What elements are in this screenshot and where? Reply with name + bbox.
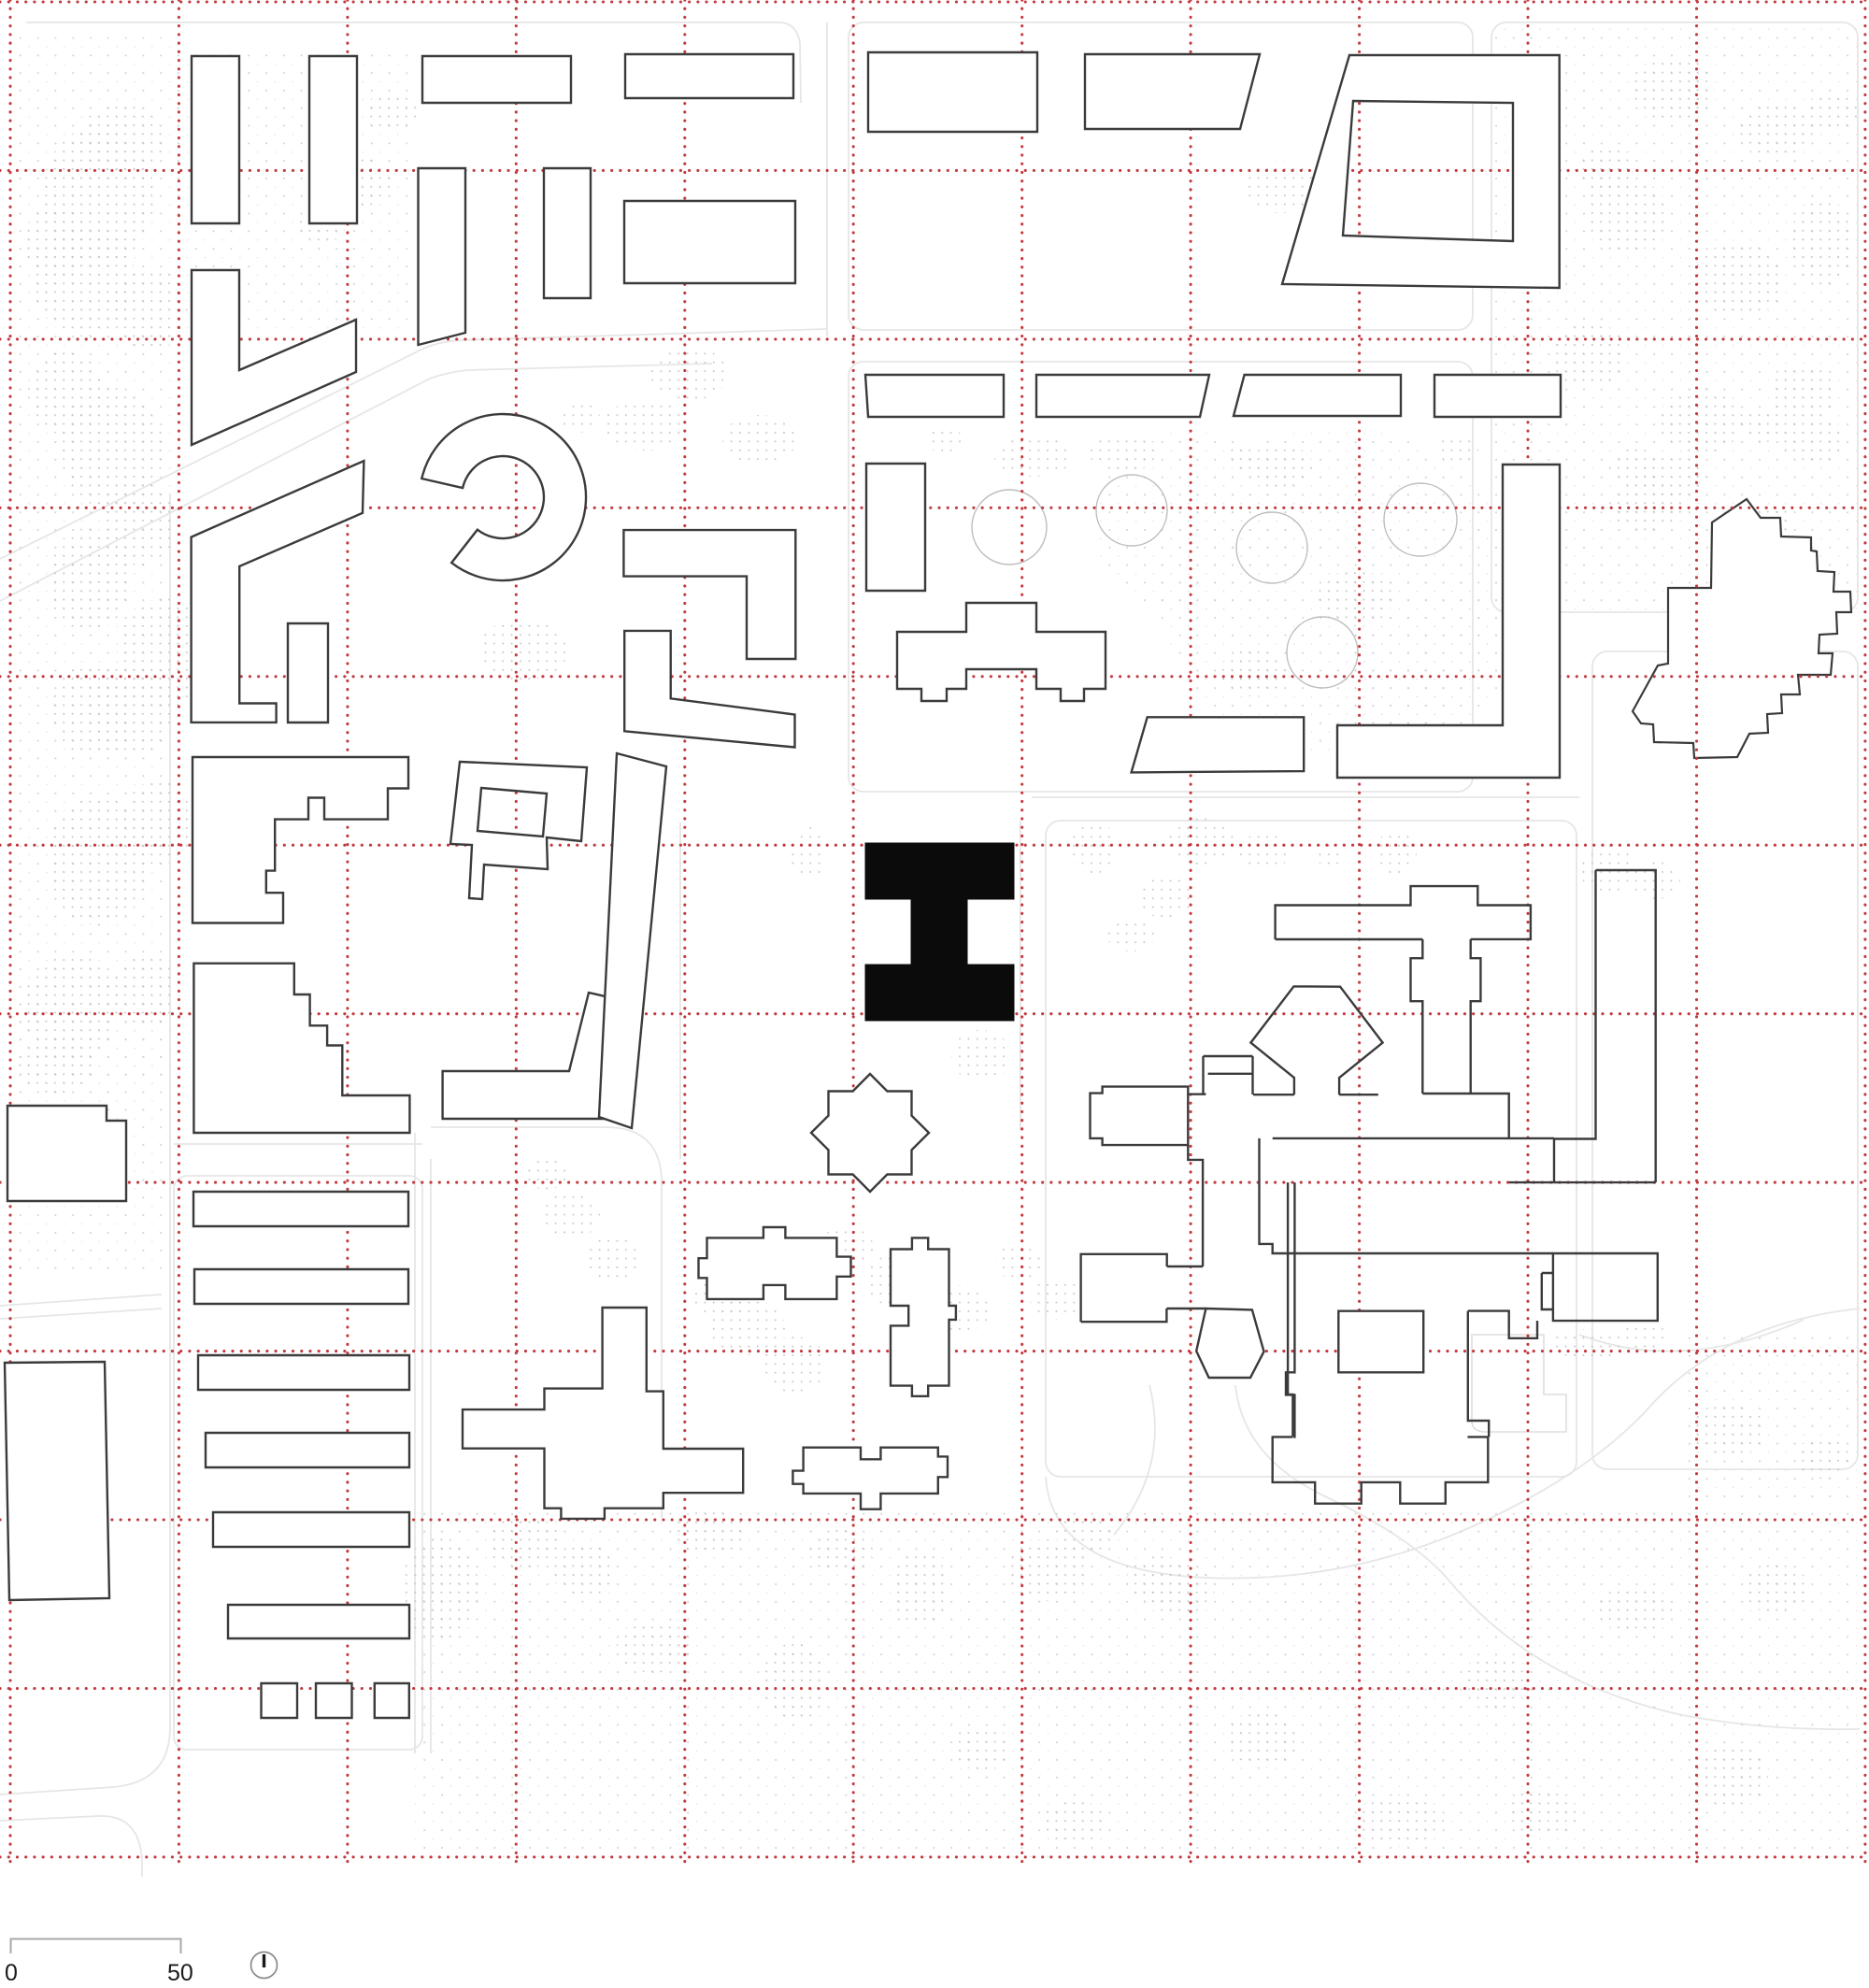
svg-text:50: 50 (167, 1960, 193, 1986)
svg-text:0: 0 (5, 1960, 18, 1986)
